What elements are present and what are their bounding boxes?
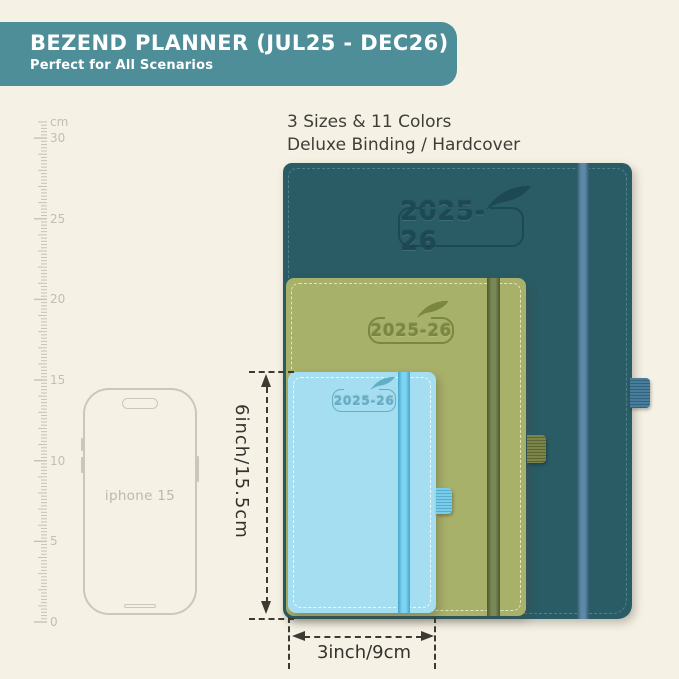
arrow-left-icon [292,631,305,641]
arrow-up-icon [261,374,271,387]
year-label: 2025-26 [334,393,395,408]
feather-icon [485,185,533,211]
cm-ruler [29,110,69,632]
ruler-tick-label: 0 [50,615,58,629]
ruler-tick-label: 20 [50,292,65,306]
pen-loop [436,488,452,514]
year-emboss-frame: 2025-26 [398,207,524,247]
year-label: 2025-26 [370,321,452,341]
banner-subtitle: Perfect for All Scenarios [30,58,457,73]
info-binding: Deluxe Binding / Hardcover [287,134,520,157]
phone-power-button-icon [197,456,200,482]
elastic-band [577,163,589,619]
ruler-tick-label: 5 [50,534,58,548]
info-sizes-colors: 3 Sizes & 11 Colors [287,111,520,134]
ruler-tick-label: 10 [50,454,65,468]
ruler-tick-label: 30 [50,131,65,145]
year-emboss-frame: 2025-26 [368,317,454,344]
ruler-tick-label: 25 [50,212,65,226]
width-dimension-label: 3inch/9cm [298,642,430,663]
banner-title: BEZEND PLANNER (JUL25 - DEC26) [30,31,457,55]
pen-loop [630,378,650,408]
elastic-band [398,372,410,613]
dim-cap-top [249,371,294,373]
phone-camera-pill-icon [122,398,158,409]
elastic-band [487,278,500,616]
product-size-infographic: BEZEND PLANNER (JUL25 - DEC26) Perfect f… [0,0,679,679]
phone-speaker-icon [124,604,156,608]
iphone-outline: iphone 15 [83,388,197,615]
product-info: 3 Sizes & 11 Colors Deluxe Binding / Har… [287,111,520,158]
height-dimension-label: 6inch/15.5cm [231,404,252,539]
dim-width-line [304,636,422,638]
title-banner: BEZEND PLANNER (JUL25 - DEC26) Perfect f… [0,22,457,86]
dim-bound-left [288,617,290,669]
feather-icon [370,376,396,391]
planner-small-blue: 2025-26 [288,372,436,613]
feather-icon [416,300,450,319]
ruler-tick-label: cm [50,115,68,129]
phone-volume-button-icon [81,457,84,473]
phone-label: iphone 15 [85,488,195,504]
arrow-down-icon [261,601,271,614]
dim-height-line [266,387,268,603]
arrow-right-icon [421,631,434,641]
year-emboss-frame: 2025-26 [332,389,396,412]
phone-volume-button-icon [81,438,84,451]
ruler-tick-label: 15 [50,373,65,387]
dim-bound-right [434,617,436,669]
pen-loop [527,435,546,463]
